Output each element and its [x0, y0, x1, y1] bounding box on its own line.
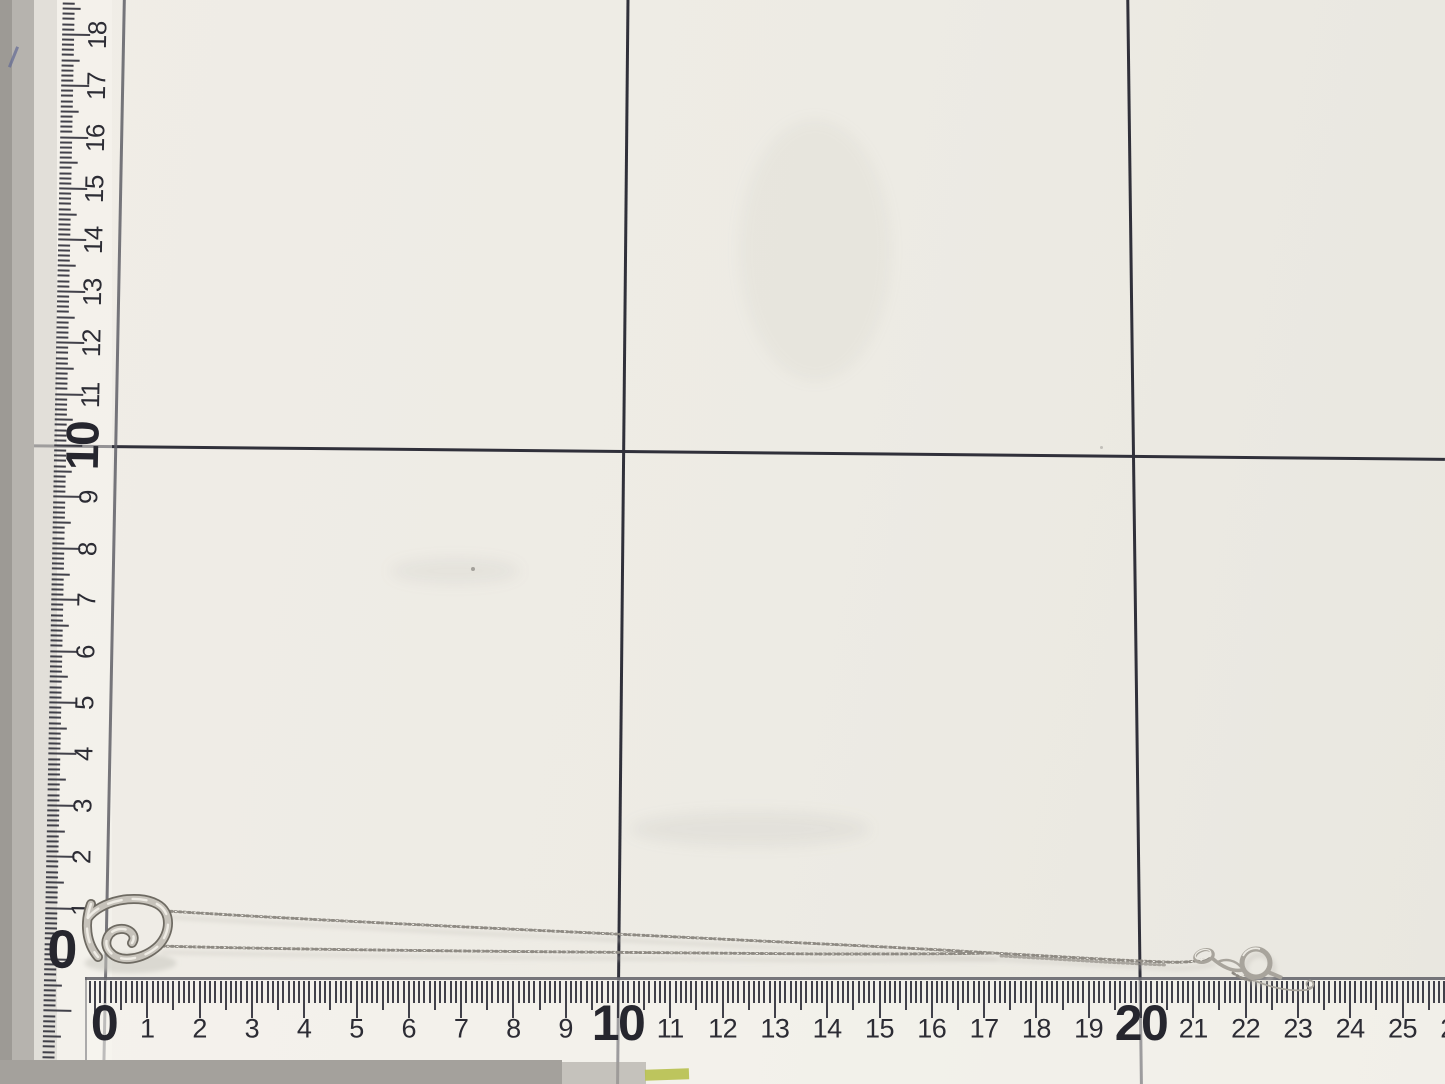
photo-stage: 0123456789101112131415161718 01234567891… [0, 0, 1445, 1084]
clasp-tail-end-loop [1307, 981, 1314, 988]
chain-upper-strand [166, 911, 992, 953]
chain-merged-strand [992, 953, 1212, 965]
pendant-open-heart [87, 899, 168, 959]
necklace [0, 0, 1445, 1084]
necklace-shadow [85, 917, 1274, 983]
